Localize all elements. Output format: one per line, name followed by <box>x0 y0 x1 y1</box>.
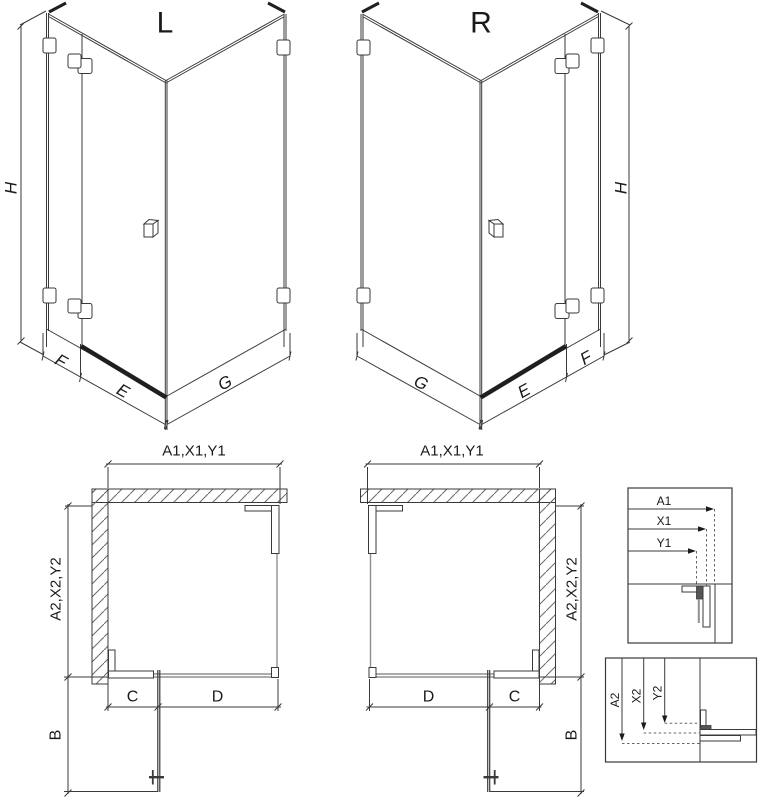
corner-profile-bar <box>109 671 154 678</box>
hinge-plate <box>566 54 579 68</box>
dim-label-top: A1,X1,Y1 <box>162 443 225 460</box>
door-hinges <box>555 54 579 319</box>
plan-view-right: A1,X1,Y1 A2,X2,Y2 B D C <box>361 443 585 797</box>
dim-label-d: D <box>423 689 435 706</box>
wall-hatch-top <box>361 489 556 503</box>
door-handle <box>484 770 499 785</box>
dim-label-side: G <box>215 372 235 395</box>
wall-bracket <box>591 38 604 53</box>
corner-profile-bar <box>494 671 539 678</box>
wall-hatch-top <box>92 489 287 503</box>
wall-bracket <box>277 40 290 55</box>
top-wall-profile-bar <box>375 506 403 512</box>
wall-bracket <box>357 40 370 55</box>
profile-block <box>697 586 704 599</box>
arrowhead-x1 <box>698 526 706 531</box>
reference-dotted-lines <box>622 723 701 743</box>
frame-lines <box>47 13 287 430</box>
technical-drawing-page: L H F E G R H G <box>0 0 768 800</box>
wall-hatch-side <box>540 489 556 684</box>
dim-label-c: C <box>127 689 139 706</box>
dim-label-top: A1,X1,Y1 <box>420 443 483 460</box>
top-wall-profile-leg <box>369 506 377 554</box>
wall-bracket <box>357 288 370 303</box>
wall-bracket <box>43 38 56 53</box>
plan-view-left: A1,X1,Y1 A2,X2,Y2 B C D <box>48 443 288 797</box>
glass-end-cap <box>369 668 376 678</box>
detail-label-x1: X1 <box>657 514 672 528</box>
wall-hatch-side <box>92 489 108 684</box>
hinge-plate <box>566 299 579 313</box>
door-hinges <box>68 54 92 319</box>
arrowhead-a1 <box>706 506 714 511</box>
dim-label-door: E <box>113 380 133 402</box>
detail-box-depth: A2 X2 Y2 <box>606 658 757 762</box>
detail-box-width: A1 X1 Y1 <box>628 488 732 643</box>
hinge-plate <box>68 54 81 68</box>
dim-label-height: H <box>612 181 631 194</box>
view-isometric-right: R H G E F <box>356 3 633 430</box>
profile-bar <box>700 730 756 736</box>
detail-label-a1: A1 <box>657 494 672 508</box>
top-wall-profile-bar <box>245 506 273 512</box>
door-handle <box>144 220 158 238</box>
glass-panel-lines <box>369 553 538 677</box>
wall-profile-cap-left <box>49 3 66 12</box>
detail-border <box>628 488 732 643</box>
detail-label-a2: A2 <box>608 692 622 707</box>
view-isometric-left: L H F E G <box>2 3 292 430</box>
dim-label-b: B <box>564 730 581 741</box>
door-handle <box>489 220 503 238</box>
door-leaf-open <box>488 670 490 792</box>
wall-profile-cap-right <box>581 3 598 12</box>
detail-label-x2: X2 <box>630 688 644 703</box>
glass-panel-lines <box>110 553 279 677</box>
detail-label-y2: Y2 <box>651 685 665 700</box>
dim-label-side: G <box>411 372 431 395</box>
dim-label-c: C <box>509 689 521 706</box>
dim-label-side: A2,X2,Y2 <box>564 557 581 620</box>
hinge-plate <box>68 299 81 313</box>
dim-label-door: E <box>514 380 534 402</box>
profile-bar-short <box>700 736 741 742</box>
detail-border <box>606 658 757 762</box>
arrowhead-a2 <box>619 734 624 742</box>
detail-label-y1: Y1 <box>657 536 672 550</box>
door-leaf-open <box>158 670 160 792</box>
arrowhead-y2 <box>662 716 667 724</box>
view-title-left: L <box>157 7 174 40</box>
door-handle <box>149 770 164 785</box>
dim-label-d: D <box>212 689 224 706</box>
view-title-right: R <box>470 7 492 40</box>
arrowhead-y1 <box>688 548 696 553</box>
height-dimension-lines <box>18 11 47 355</box>
wall-bracket <box>43 288 56 303</box>
wall-profile-cap-right <box>268 3 285 12</box>
glass-end-cap <box>272 668 279 678</box>
shower-enclosure-dimension-drawing: L H F E G R H G <box>0 0 768 800</box>
wall-bracket <box>277 288 290 303</box>
dim-label-side: A2,X2,Y2 <box>48 557 65 620</box>
wall-profile-cap-left <box>362 3 379 12</box>
profile-leg <box>701 710 707 727</box>
profile-leg <box>703 586 710 627</box>
frame-lines <box>361 13 601 430</box>
dim-label-height: H <box>2 181 21 194</box>
arrowhead-x2 <box>641 723 646 731</box>
dim-label-b: B <box>48 730 65 741</box>
dim-label-fixed: F <box>52 350 72 372</box>
dim-label-fixed: F <box>577 346 597 368</box>
detail-section-lines <box>628 584 732 643</box>
top-wall-profile-leg <box>272 506 280 554</box>
wall-bracket <box>591 288 604 303</box>
